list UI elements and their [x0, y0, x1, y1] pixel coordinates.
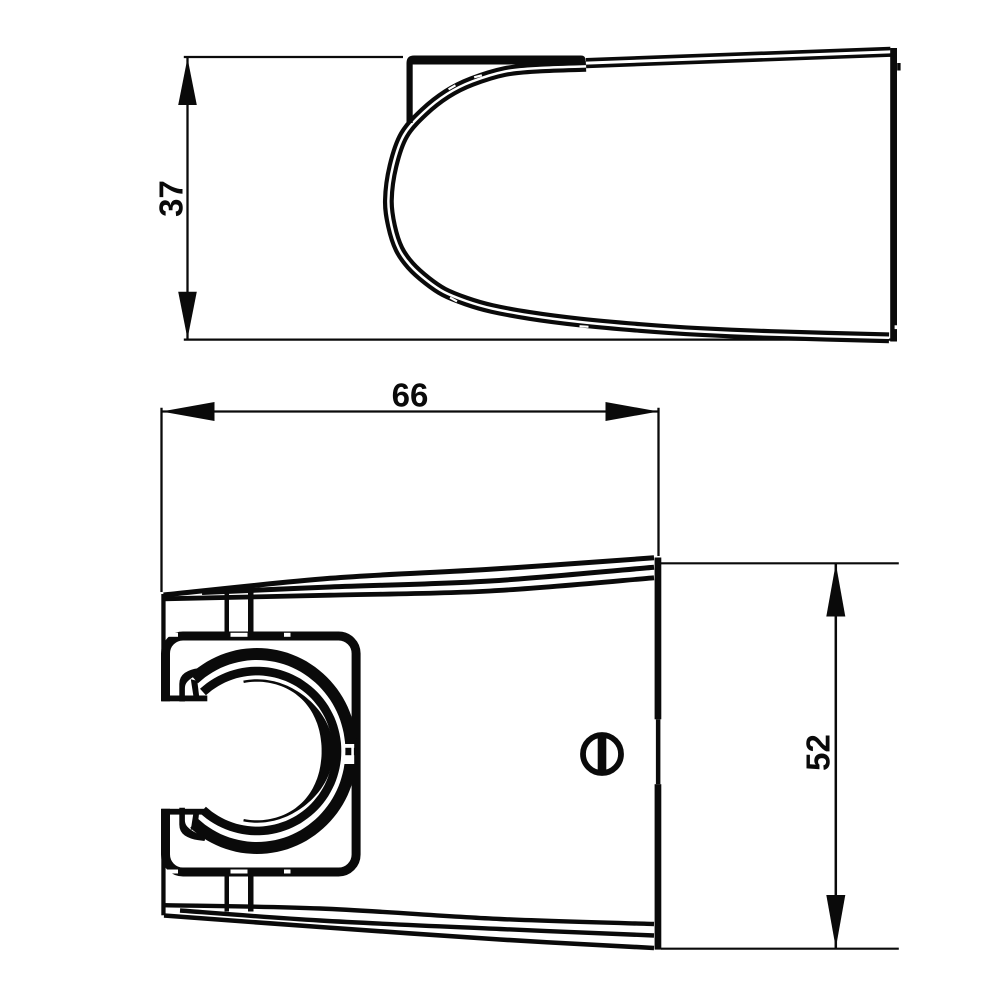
svg-text:37: 37 — [153, 180, 190, 217]
svg-text:52: 52 — [800, 734, 837, 771]
svg-text:66: 66 — [392, 377, 429, 414]
